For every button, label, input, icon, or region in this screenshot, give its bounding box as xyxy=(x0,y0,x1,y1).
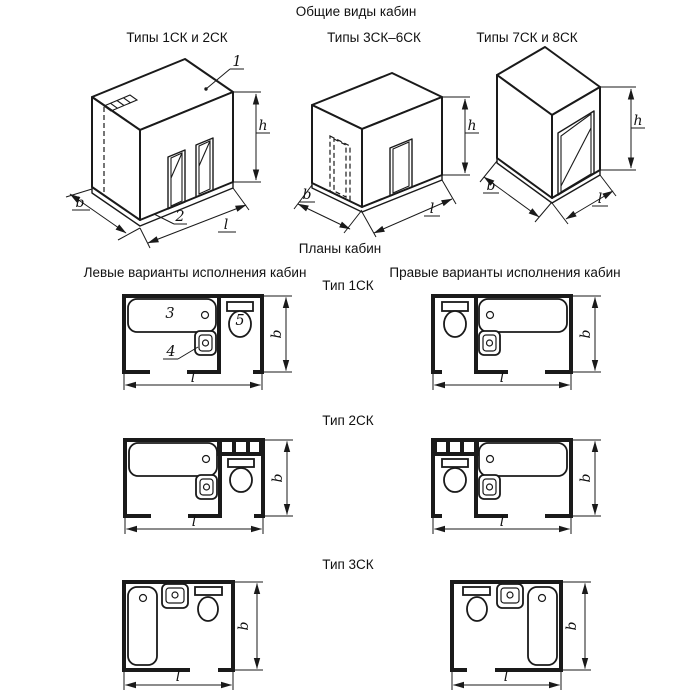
plan-3sk-left: b l xyxy=(122,580,263,690)
dim-label-l: l xyxy=(191,370,195,386)
dim-label-b: b xyxy=(303,187,312,203)
dimension-h xyxy=(442,97,479,175)
callout-washbasin: 4 xyxy=(165,344,175,360)
dim-label-l: l xyxy=(504,669,508,685)
callout-toilet: 5 xyxy=(235,313,244,329)
dim-label-l: l xyxy=(224,217,228,233)
plan-type-label-2sk: Тип 2СК xyxy=(322,413,374,428)
type-label-1sk-2sk: Типы 1СК и 2СК xyxy=(126,30,227,45)
leader-dot xyxy=(204,87,207,90)
general-views-title: Общие виды кабин xyxy=(296,4,417,19)
drawing-page: Общие виды кабин Типы 1СК и 2СК Типы 3СК… xyxy=(0,0,700,700)
plan-type-label-3sk: Тип 3СК xyxy=(322,557,374,572)
plan-1sk-left: b l 3 4 5 xyxy=(122,294,292,390)
iso-view-1sk-2sk: 1 2 b l h xyxy=(66,54,270,248)
dim-label-h: h xyxy=(467,118,476,134)
dim-label-b: b xyxy=(564,621,580,630)
callout-floor-panel: 2 xyxy=(174,209,184,225)
type-label-3sk-6sk: Типы 3СК–6СК xyxy=(327,30,421,45)
callout-bath: 3 xyxy=(165,306,174,322)
plan-3sk-right: b l xyxy=(450,580,591,690)
dim-label-l: l xyxy=(176,669,180,685)
dim-label-l: l xyxy=(192,514,196,530)
dim-label-l: l xyxy=(500,370,504,386)
dim-label-b: b xyxy=(236,621,252,630)
dim-label-h: h xyxy=(258,118,267,134)
dim-label-b: b xyxy=(578,473,594,482)
plan-2sk-right: b l xyxy=(431,438,601,534)
iso-view-3sk-6sk: h b l xyxy=(294,73,479,237)
dim-label-b: b xyxy=(269,329,285,338)
callout-roof-panel: 1 xyxy=(232,54,241,70)
plans-title: Планы кабин xyxy=(299,241,381,256)
dim-label-l: l xyxy=(500,514,504,530)
dim-label-l: l xyxy=(430,201,434,217)
plan-2sk-left: b l xyxy=(123,438,293,534)
plan-1sk-right: b l xyxy=(431,294,601,390)
dim-label-b: b xyxy=(487,178,496,194)
right-variants-heading: Правые варианты исполнения кабин xyxy=(389,265,620,280)
sanitary-cabin-drawing: Общие виды кабин Типы 1СК и 2СК Типы 3СК… xyxy=(0,0,700,700)
iso-view-7sk-8sk: h b l xyxy=(480,47,645,224)
left-variants-heading: Левые варианты исполнения кабин xyxy=(84,265,307,280)
dim-label-b: b xyxy=(578,329,594,338)
dim-label-l: l xyxy=(598,191,602,207)
dim-label-b: b xyxy=(76,195,85,211)
plan-type-label-1sk: Тип 1СК xyxy=(322,278,374,293)
dim-label-h: h xyxy=(633,113,642,129)
dim-label-b: b xyxy=(270,473,286,482)
type-label-7sk-8sk: Типы 7СК и 8СК xyxy=(476,30,577,45)
dimension-h xyxy=(233,92,270,182)
